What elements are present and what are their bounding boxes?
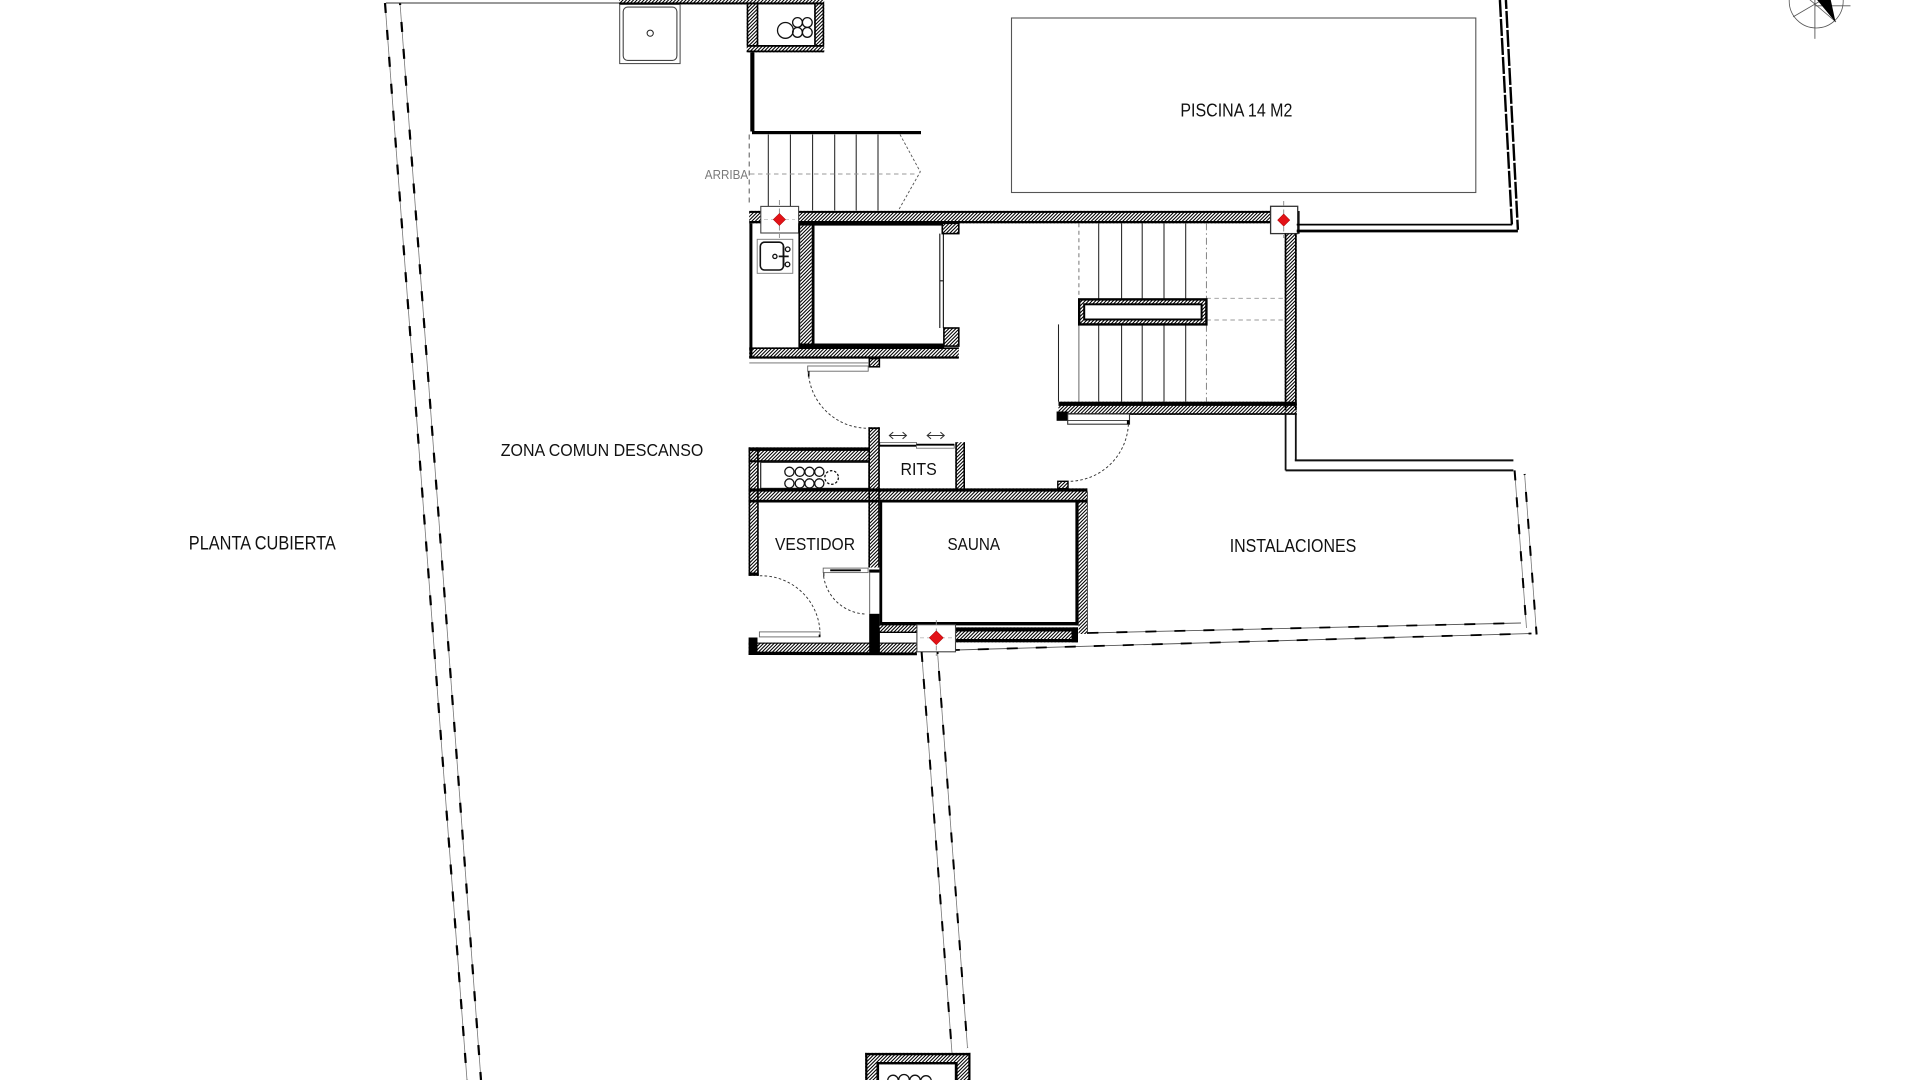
svg-text:PISCINA 14 M2: PISCINA 14 M2 <box>1180 100 1292 120</box>
svg-text:VESTIDOR: VESTIDOR <box>775 534 855 554</box>
svg-text:SAUNA: SAUNA <box>948 534 1001 554</box>
svg-text:PLANTA CUBIERTA: PLANTA CUBIERTA <box>189 534 336 555</box>
svg-text:RITS: RITS <box>901 459 937 479</box>
svg-text:INSTALACIONES: INSTALACIONES <box>1230 536 1357 556</box>
svg-text:ARRIBA: ARRIBA <box>705 168 749 182</box>
svg-text:ZONA COMUN DESCANSO: ZONA COMUN DESCANSO <box>501 440 704 460</box>
